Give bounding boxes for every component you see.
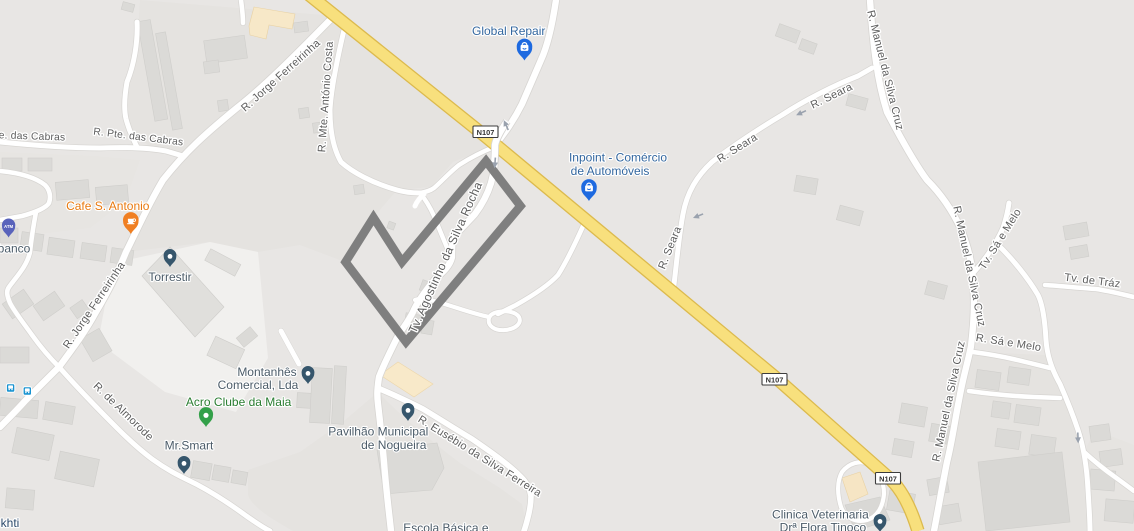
- svg-text:Pavilhão Municipal: Pavilhão Municipal: [328, 425, 428, 439]
- svg-text:Clinica Veterinaria: Clinica Veterinaria: [772, 508, 869, 522]
- svg-text:Cafe S. Antonio: Cafe S. Antonio: [66, 199, 150, 213]
- svg-text:Inpoint - Comércio: Inpoint - Comércio: [569, 151, 667, 165]
- svg-text:Torrestir: Torrestir: [148, 270, 191, 284]
- svg-text:Montanhês: Montanhês: [237, 365, 296, 379]
- svg-text:banco: banco: [0, 242, 31, 256]
- svg-text:Drª Flora Tinoco: Drª Flora Tinoco: [780, 521, 867, 531]
- svg-text:de Automóveis: de Automóveis: [571, 164, 650, 178]
- svg-text:Mr.Smart: Mr.Smart: [165, 439, 214, 453]
- svg-text:Acro Clube da Maia: Acro Clube da Maia: [186, 395, 292, 409]
- svg-text:Comercial, Lda: Comercial, Lda: [218, 378, 299, 392]
- svg-text:khti: khti: [1, 516, 20, 530]
- svg-text:de Nogueira: de Nogueira: [361, 438, 427, 452]
- svg-text:ATM: ATM: [4, 224, 14, 229]
- svg-text:Global Repair: Global Repair: [472, 24, 545, 38]
- svg-text:N107: N107: [879, 474, 897, 483]
- svg-text:R. Pte. das Cabras: R. Pte. das Cabras: [0, 129, 66, 143]
- svg-text:N107: N107: [477, 128, 495, 137]
- svg-text:N107: N107: [766, 375, 784, 384]
- svg-text:Escola Básica e: Escola Básica e: [403, 521, 489, 531]
